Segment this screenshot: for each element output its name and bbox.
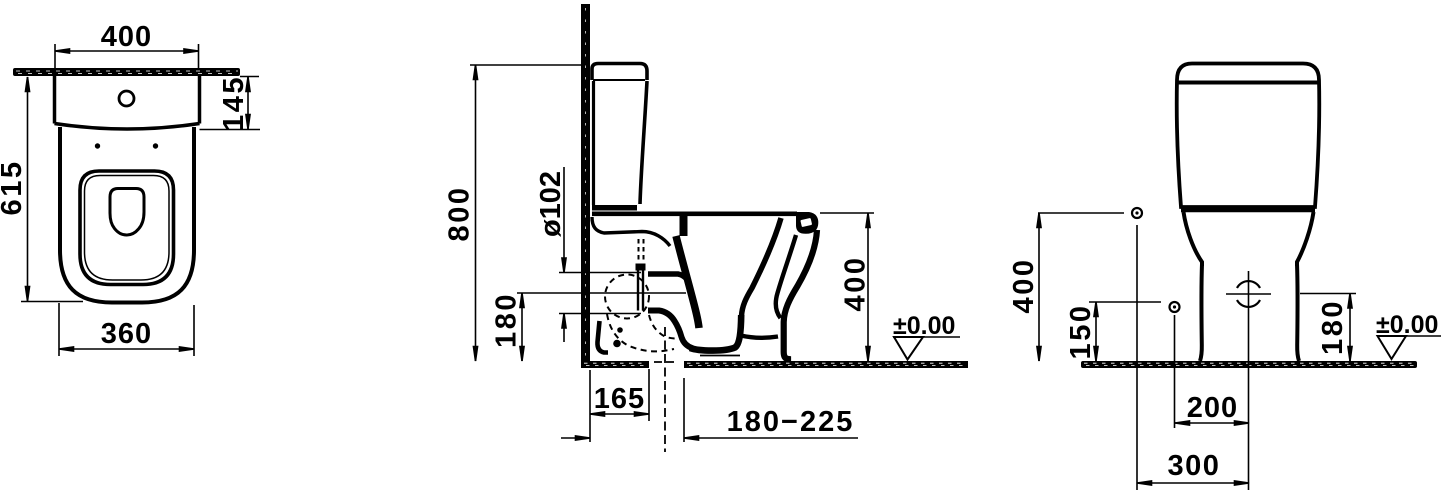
- svg-text:ø102: ø102: [535, 171, 567, 237]
- svg-text:400: 400: [840, 256, 872, 312]
- svg-text:800: 800: [444, 186, 476, 242]
- svg-text:615: 615: [0, 160, 28, 216]
- svg-text:150: 150: [1065, 304, 1097, 360]
- svg-text:±0.00: ±0.00: [1376, 311, 1438, 339]
- svg-text:145: 145: [218, 75, 250, 131]
- svg-text:±0.00: ±0.00: [893, 312, 955, 340]
- svg-text:180−225: 180−225: [727, 406, 855, 438]
- svg-text:300: 300: [1168, 450, 1221, 482]
- svg-text:180: 180: [1317, 299, 1349, 355]
- svg-text:400: 400: [101, 21, 152, 53]
- svg-text:165: 165: [594, 383, 645, 415]
- svg-text:360: 360: [101, 318, 152, 350]
- svg-text:200: 200: [1187, 392, 1238, 424]
- svg-text:180: 180: [491, 292, 523, 348]
- svg-text:400: 400: [1008, 258, 1040, 314]
